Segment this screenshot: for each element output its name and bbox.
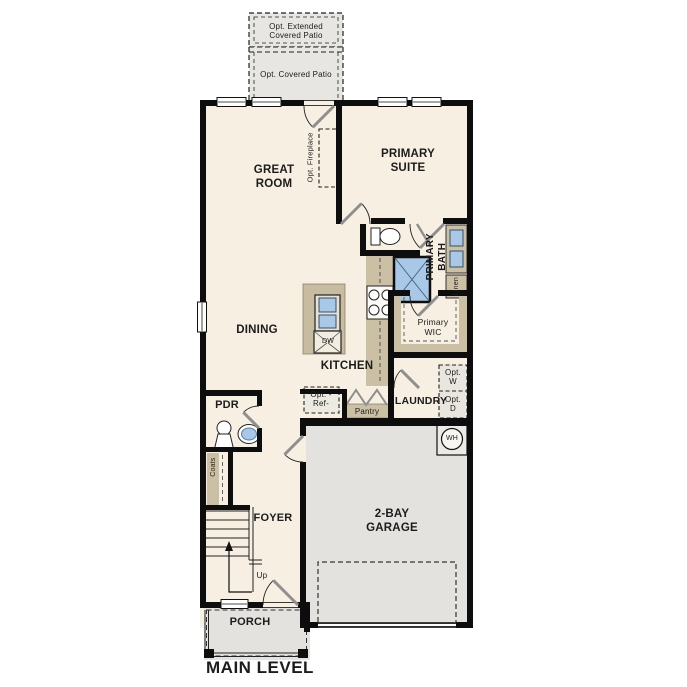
primary-bath-label: PRIMARY BATH	[425, 227, 449, 287]
pdr-label: PDR	[207, 399, 247, 412]
primary-toilet-tank	[371, 228, 380, 245]
foyer-label: FOYER	[243, 512, 303, 525]
garage-label: 2-BAY GARAGE	[360, 508, 424, 535]
pantry-label: Pantry	[347, 407, 387, 416]
water-heater-label: WH	[442, 435, 462, 443]
linen-label: Linen	[453, 272, 461, 300]
great-room-suite-wall	[336, 106, 342, 224]
primary-suite-label: PRIMARY SUITE	[370, 148, 446, 175]
primary-wic-label: Primary WIC	[413, 317, 453, 337]
great-room-label: GREAT ROOM	[239, 164, 309, 191]
coats-label: Coats	[210, 451, 218, 483]
front-door-opening	[263, 603, 298, 607]
opt-dryer-label: Opt. D	[441, 395, 465, 414]
dining-label: DINING	[227, 324, 287, 338]
main-level-title: MAIN LEVEL	[206, 658, 346, 678]
wic-shelf	[393, 344, 467, 352]
garage-left-wall	[300, 462, 306, 622]
porch-post	[298, 649, 308, 658]
floor-plan-drawing	[0, 0, 687, 687]
opt-ref-label: Opt. -Ref-	[307, 390, 335, 409]
primary-toilet	[380, 229, 400, 245]
opt-extended-patio-label: Opt. Extended Covered Patio	[256, 22, 336, 41]
wic-shelf	[393, 296, 401, 346]
dishwasher-label: DW	[318, 338, 338, 346]
vanity-sink	[450, 251, 463, 267]
exterior-wall-left	[200, 100, 206, 608]
stairs-up-label: Up	[252, 571, 272, 580]
opt-covered-patio-label: Opt. Covered Patio	[251, 70, 341, 79]
opt-fireplace-label: Opt. Fireplace	[307, 125, 316, 189]
opt-washer-label: Opt. W	[441, 368, 465, 387]
pedestal-sink	[217, 421, 231, 435]
garage-top-wall	[300, 418, 473, 426]
floor-plan: Opt. Extended Covered Patio Opt. Covered…	[0, 0, 687, 687]
exterior-wall-right	[467, 100, 473, 628]
porch-post	[204, 649, 214, 658]
porch-label: PORCH	[220, 616, 280, 629]
vanity-sink	[450, 230, 463, 246]
wic-shelf	[459, 296, 467, 346]
back-door-opening	[304, 101, 334, 105]
kitchen-label: KITCHEN	[312, 360, 382, 374]
